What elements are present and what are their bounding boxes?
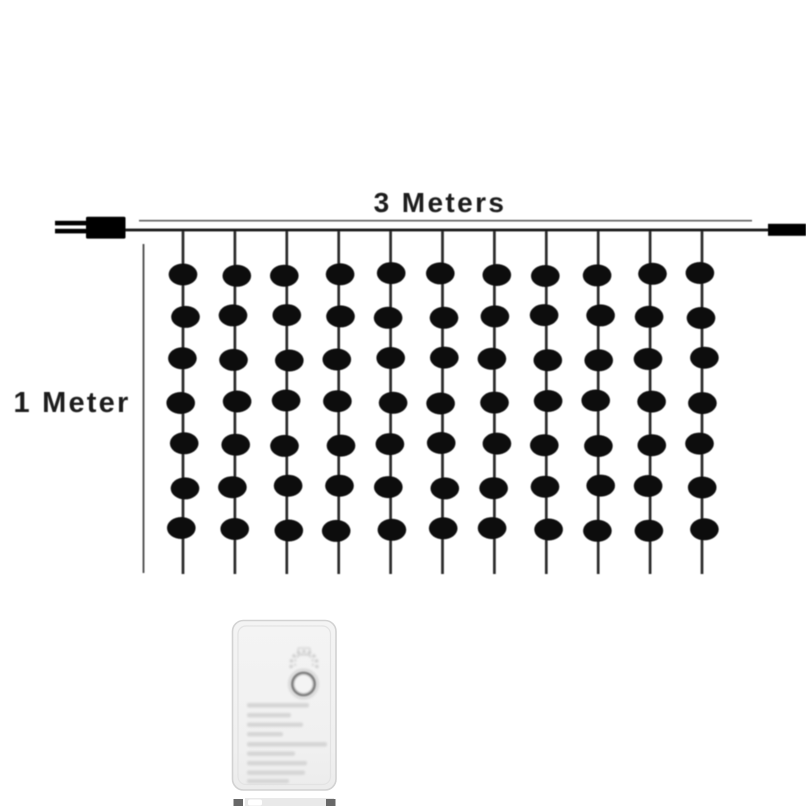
svg-text:3 Meters: 3 Meters (374, 187, 507, 218)
svg-text:1 Meter: 1 Meter (14, 387, 131, 419)
